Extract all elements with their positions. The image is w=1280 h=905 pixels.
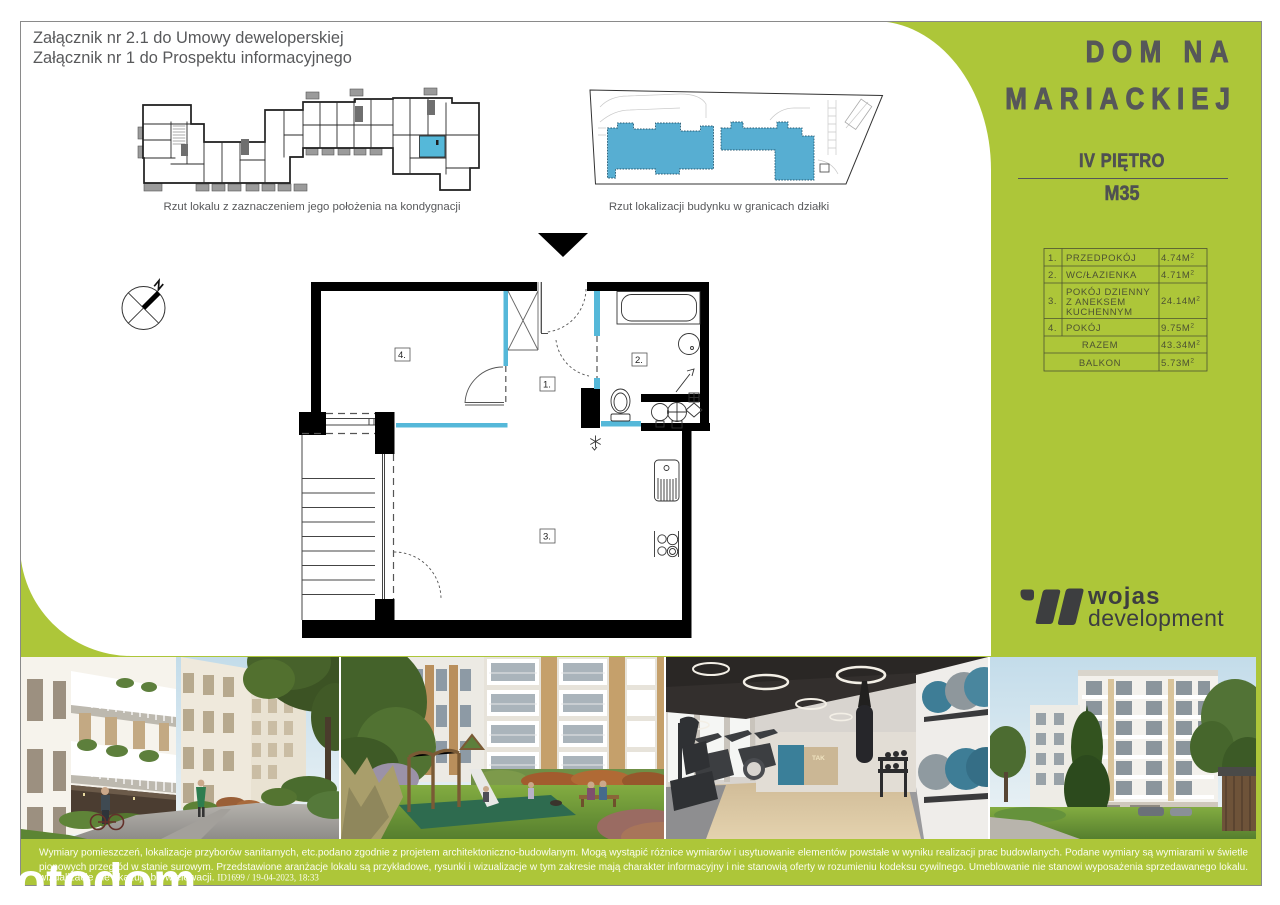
- svg-text:Wymiary pomieszczeń, lokalizac: Wymiary pomieszczeń, lokalizacje przybor…: [39, 848, 1249, 859]
- svg-text:MARIACKIEJ: MARIACKIEJ: [1005, 82, 1237, 117]
- svg-text:3.: 3.: [543, 532, 551, 543]
- svg-text:DOM NA: DOM NA: [1086, 35, 1236, 70]
- svg-text:BALKON: BALKON: [1079, 358, 1121, 369]
- svg-text:TAK: TAK: [812, 755, 825, 762]
- svg-text:PRZEDPOKÓJ: PRZEDPOKÓJ: [1066, 253, 1136, 264]
- svg-text:pionowych przegród w stanie su: pionowych przegród w stanie surowym. Prz…: [39, 862, 1248, 873]
- svg-text:Załącznik nr 2.1 do Umowy dewe: Załącznik nr 2.1 do Umowy deweloperskiej: [33, 29, 344, 47]
- svg-text:4.: 4.: [1048, 323, 1057, 334]
- svg-text:POKÓJ: POKÓJ: [1066, 323, 1101, 334]
- svg-text:43.34M2: 43.34M2: [1161, 340, 1201, 352]
- svg-text:otodom: otodom: [16, 854, 197, 905]
- svg-text:9.75M2: 9.75M2: [1161, 323, 1195, 335]
- svg-text:WC/ŁAZIENKA: WC/ŁAZIENKA: [1066, 270, 1137, 281]
- svg-text:4.71M2: 4.71M2: [1161, 270, 1195, 282]
- svg-text:5.73M2: 5.73M2: [1161, 358, 1195, 370]
- svg-text:4.74M2: 4.74M2: [1161, 253, 1195, 265]
- svg-text:3.: 3.: [1048, 296, 1057, 307]
- svg-text:RAZEM: RAZEM: [1082, 340, 1118, 351]
- svg-text:1.: 1.: [543, 380, 551, 391]
- svg-text:development: development: [1088, 605, 1224, 631]
- svg-text:KUCHENNYM: KUCHENNYM: [1066, 307, 1133, 318]
- svg-text:Rzut lokalizacji budynku w gra: Rzut lokalizacji budynku w granicach dzi…: [609, 201, 829, 213]
- svg-text:24.14M2: 24.14M2: [1161, 296, 1201, 308]
- svg-text:1.: 1.: [1048, 253, 1057, 264]
- svg-text:Załącznik nr 1 do Prospektu in: Załącznik nr 1 do Prospektu informacyjne…: [33, 49, 352, 67]
- svg-text:IV PIĘTRO: IV PIĘTRO: [1079, 150, 1165, 171]
- svg-text:2.: 2.: [635, 355, 643, 366]
- svg-text:4.: 4.: [398, 350, 406, 361]
- svg-text:Rzut lokalu z zaznaczeniem jeg: Rzut lokalu z zaznaczeniem jego położeni…: [164, 201, 461, 213]
- svg-text:M35: M35: [1104, 182, 1139, 206]
- svg-text:2.: 2.: [1048, 270, 1057, 281]
